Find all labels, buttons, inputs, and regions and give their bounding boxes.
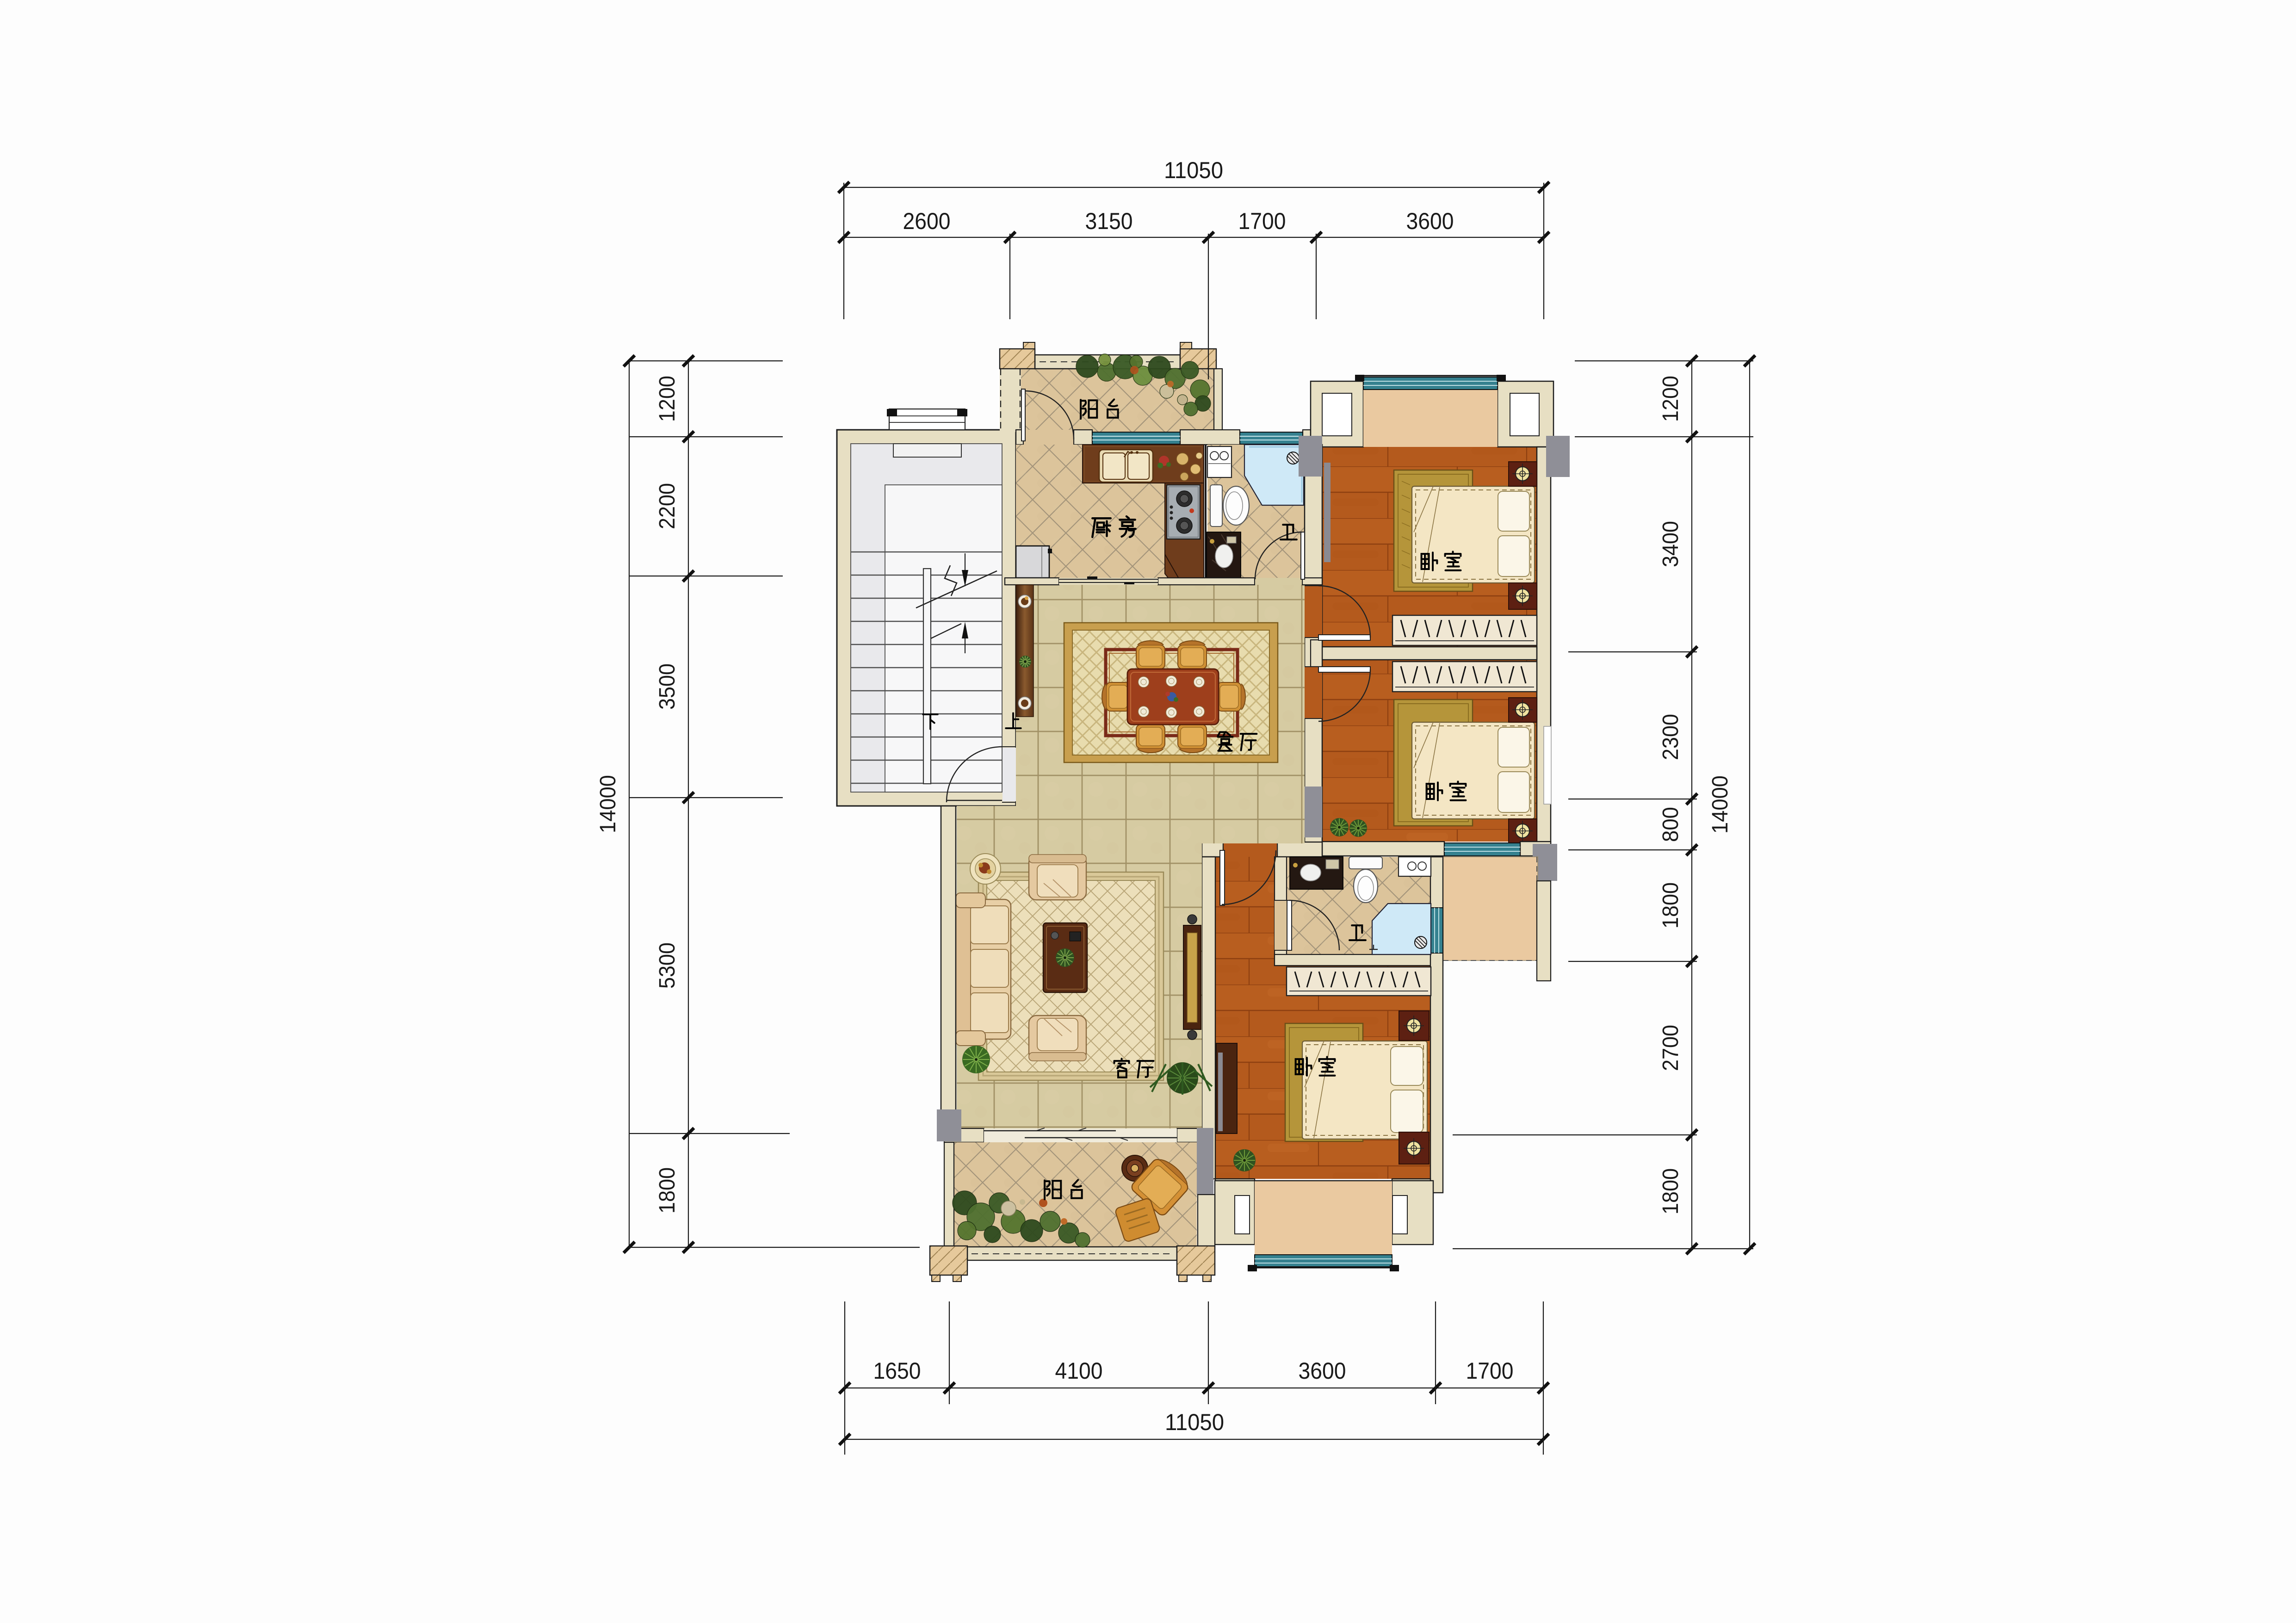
svg-text:11050: 11050 [1164, 157, 1223, 183]
svg-text:5300: 5300 [655, 942, 680, 989]
svg-text:1800: 1800 [1659, 882, 1683, 929]
svg-text:11050: 11050 [1165, 1409, 1224, 1435]
svg-text:1800: 1800 [655, 1167, 680, 1214]
svg-text:3600: 3600 [1299, 1358, 1346, 1384]
svg-text:1650: 1650 [873, 1358, 921, 1384]
svg-text:1800: 1800 [1659, 1168, 1683, 1214]
svg-text:3150: 3150 [1085, 208, 1133, 234]
svg-text:3400: 3400 [1659, 521, 1683, 567]
svg-text:3600: 3600 [1406, 208, 1454, 234]
svg-text:3500: 3500 [655, 663, 680, 710]
svg-text:2200: 2200 [655, 483, 680, 529]
svg-text:4100: 4100 [1055, 1358, 1103, 1384]
svg-text:800: 800 [1659, 807, 1683, 842]
svg-text:14000: 14000 [596, 775, 620, 833]
svg-text:1700: 1700 [1466, 1358, 1514, 1384]
svg-text:1700: 1700 [1238, 208, 1286, 234]
svg-text:2300: 2300 [1659, 714, 1683, 760]
svg-text:14000: 14000 [1708, 775, 1733, 834]
svg-text:1200: 1200 [1659, 376, 1683, 422]
svg-text:1200: 1200 [655, 376, 680, 422]
svg-text:2600: 2600 [903, 208, 951, 234]
svg-text:2700: 2700 [1659, 1025, 1683, 1071]
